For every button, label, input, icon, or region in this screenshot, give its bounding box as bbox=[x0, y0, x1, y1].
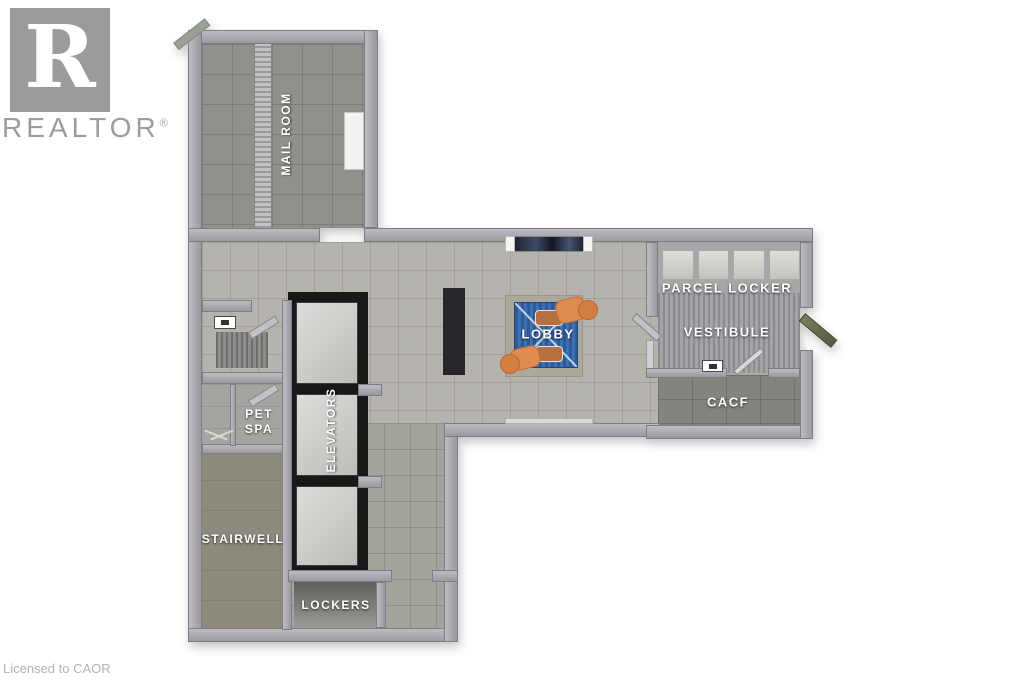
wall bbox=[800, 242, 813, 308]
wall bbox=[646, 242, 658, 317]
entry-walkoff-mat bbox=[216, 332, 268, 368]
wall bbox=[230, 384, 236, 446]
lockers-label: LOCKERS bbox=[301, 598, 370, 612]
cacf-label: CACF bbox=[707, 395, 749, 410]
floor-storage-room bbox=[202, 44, 254, 228]
lobby-desk bbox=[443, 288, 465, 375]
parcel-locker-units bbox=[662, 250, 800, 280]
wall bbox=[188, 228, 320, 242]
wall bbox=[444, 423, 660, 437]
wall bbox=[288, 570, 392, 582]
mailroom-table bbox=[344, 112, 364, 170]
mail-room-label: MAIL ROOM bbox=[279, 92, 293, 175]
parcel-locker-unit bbox=[698, 250, 730, 280]
access-panel bbox=[214, 316, 236, 329]
vestibule-label: VESTIBULE bbox=[684, 325, 770, 340]
wall bbox=[364, 30, 378, 228]
pet-spa-label: PETSPA bbox=[245, 407, 273, 437]
mailbox-bank bbox=[254, 44, 272, 228]
wall bbox=[188, 628, 458, 642]
entrance-glass-door bbox=[505, 236, 593, 252]
lounge-chair bbox=[500, 354, 520, 374]
floorplan: MAIL ROOM PETSPA ELEVATORS STAIRWELL LOC… bbox=[0, 0, 1024, 681]
access-panel bbox=[702, 360, 723, 372]
wall bbox=[768, 368, 800, 378]
wall bbox=[376, 582, 386, 628]
lounge-chair bbox=[578, 300, 598, 320]
wall bbox=[800, 350, 813, 439]
parcel-locker-unit bbox=[769, 250, 801, 280]
wall bbox=[432, 570, 458, 582]
parcel-locker-unit bbox=[662, 250, 694, 280]
wall bbox=[202, 300, 252, 312]
wall bbox=[646, 425, 813, 439]
lobby-bench bbox=[505, 418, 593, 424]
parcel-locker-label: PARCEL LOCKER bbox=[662, 281, 792, 296]
stairwell-label: STAIRWELL bbox=[202, 532, 284, 546]
wall bbox=[188, 30, 202, 642]
wall bbox=[202, 444, 290, 454]
elevator-cab bbox=[296, 486, 358, 566]
lobby-label: LOBBY bbox=[522, 327, 575, 342]
floorplan-image: R REALTOR® Licensed to CAOR bbox=[0, 0, 1024, 681]
exterior-door-leaf bbox=[799, 313, 838, 348]
parcel-locker-unit bbox=[733, 250, 765, 280]
wall bbox=[188, 30, 378, 44]
wall bbox=[444, 423, 458, 642]
wall bbox=[202, 372, 290, 384]
elevator-jamb bbox=[358, 476, 382, 488]
elevator-cab bbox=[296, 302, 358, 384]
elevator-jamb bbox=[358, 384, 382, 396]
elevators-label: ELEVATORS bbox=[324, 388, 338, 473]
